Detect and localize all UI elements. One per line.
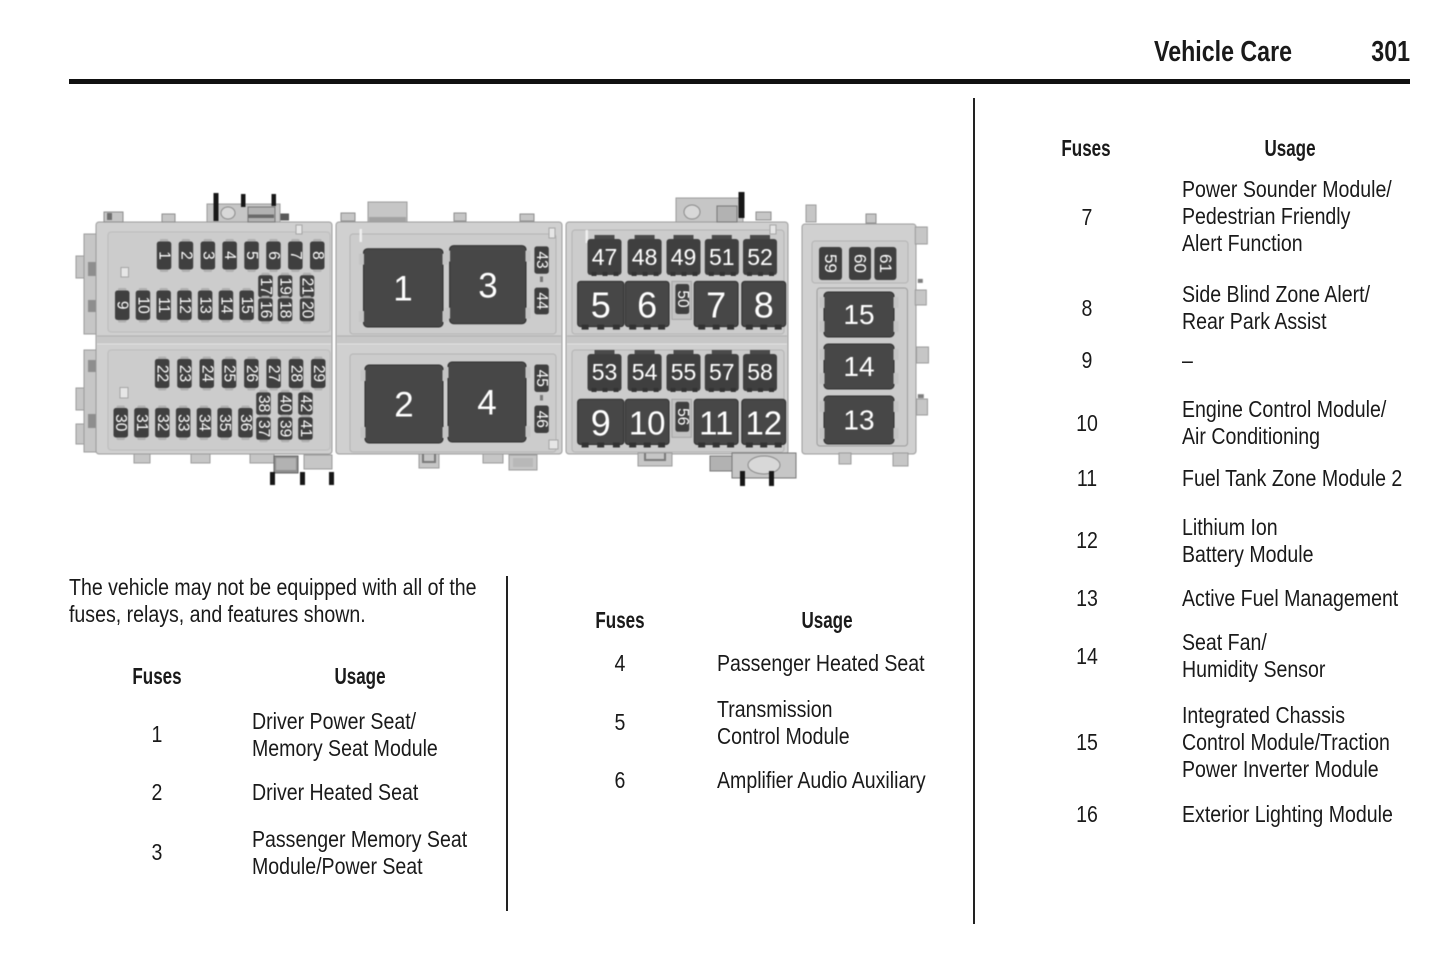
svg-text:12: 12 (745, 404, 782, 441)
svg-text:20: 20 (299, 301, 316, 319)
svg-text:19: 19 (277, 278, 294, 295)
svg-text:52: 52 (747, 244, 773, 270)
svg-text:58: 58 (747, 359, 773, 385)
svg-text:11: 11 (155, 297, 172, 313)
svg-text:16: 16 (257, 301, 274, 318)
svg-text:44: 44 (533, 292, 550, 310)
svg-text:4: 4 (221, 251, 238, 260)
svg-text:29: 29 (310, 365, 327, 382)
svg-text:34: 34 (195, 414, 212, 432)
svg-text:4: 4 (477, 384, 496, 423)
svg-text:33: 33 (175, 414, 192, 431)
svg-text:13: 13 (843, 405, 874, 436)
svg-text:35: 35 (216, 414, 233, 431)
svg-text:15: 15 (843, 299, 874, 330)
svg-text:23: 23 (176, 365, 193, 382)
svg-text:53: 53 (592, 359, 618, 385)
svg-text:39: 39 (277, 420, 294, 437)
svg-text:11: 11 (699, 404, 733, 441)
svg-text:57: 57 (709, 359, 735, 385)
svg-text:36: 36 (237, 414, 254, 431)
svg-text:45: 45 (533, 370, 550, 387)
svg-text:8: 8 (754, 285, 774, 326)
svg-text:1: 1 (156, 251, 173, 260)
svg-text:2: 2 (394, 386, 413, 425)
svg-text:7: 7 (287, 251, 304, 260)
svg-text:5: 5 (243, 251, 260, 260)
svg-text:59: 59 (821, 254, 840, 273)
svg-text:37: 37 (255, 420, 272, 437)
svg-text:14: 14 (843, 351, 874, 382)
svg-text:61: 61 (876, 254, 895, 273)
svg-text:28: 28 (288, 365, 305, 382)
svg-text:54: 54 (632, 359, 658, 385)
svg-text:21: 21 (299, 278, 316, 295)
svg-text:48: 48 (632, 244, 658, 270)
svg-text:55: 55 (671, 359, 697, 385)
svg-text:13: 13 (197, 297, 214, 314)
svg-text:17: 17 (257, 278, 274, 295)
svg-text:10: 10 (134, 297, 151, 315)
svg-text:3: 3 (478, 267, 497, 306)
svg-text:22: 22 (154, 365, 171, 382)
svg-text:32: 32 (154, 414, 171, 431)
svg-text:31: 31 (133, 414, 150, 431)
svg-text:26: 26 (243, 365, 260, 382)
svg-text:8: 8 (309, 251, 326, 260)
svg-text:49: 49 (671, 244, 697, 270)
svg-text:30: 30 (112, 414, 129, 432)
svg-text:3: 3 (199, 251, 216, 260)
svg-text:15: 15 (238, 297, 255, 314)
svg-text:10: 10 (629, 404, 666, 441)
svg-text:12: 12 (176, 297, 193, 314)
svg-text:43: 43 (533, 251, 550, 268)
svg-text:24: 24 (198, 365, 215, 383)
svg-text:6: 6 (637, 285, 657, 326)
svg-text:6: 6 (265, 251, 282, 260)
svg-text:42: 42 (297, 395, 314, 412)
svg-text:60: 60 (851, 254, 870, 273)
svg-text:46: 46 (533, 411, 550, 428)
svg-text:18: 18 (277, 301, 294, 318)
svg-text:1: 1 (393, 270, 412, 309)
svg-text:41: 41 (297, 420, 314, 437)
svg-text:51: 51 (709, 244, 735, 270)
svg-text:2: 2 (177, 251, 194, 260)
svg-text:25: 25 (221, 365, 238, 382)
svg-text:50: 50 (674, 290, 691, 308)
svg-text:5: 5 (591, 285, 611, 326)
svg-text:40: 40 (277, 395, 294, 413)
svg-text:7: 7 (706, 285, 726, 326)
svg-text:27: 27 (265, 365, 282, 382)
svg-text:56: 56 (674, 408, 691, 425)
svg-text:38: 38 (255, 395, 272, 412)
svg-text:14: 14 (217, 297, 234, 315)
svg-text:9: 9 (114, 301, 131, 310)
svg-text:47: 47 (592, 244, 618, 270)
svg-text:9: 9 (591, 402, 611, 443)
